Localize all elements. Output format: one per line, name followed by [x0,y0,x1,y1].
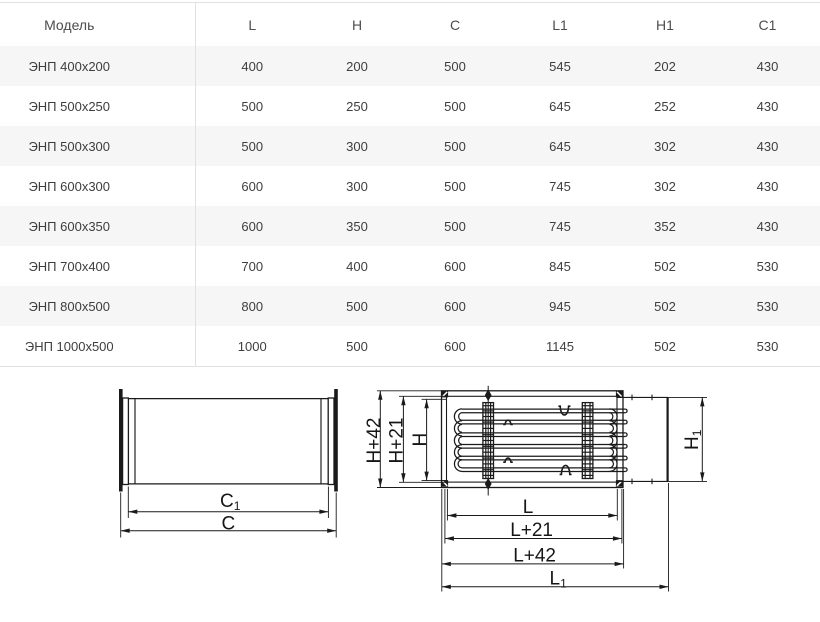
svg-text:H+21: H+21 [387,418,408,464]
svg-text:L: L [523,497,534,518]
svg-text:L1: L1 [550,568,568,590]
svg-text:H: H [410,433,431,447]
svg-text:H+42: H+42 [364,418,385,464]
svg-text:C: C [222,514,236,535]
svg-text:L+21: L+21 [510,520,553,541]
svg-text:H1: H1 [682,429,704,450]
svg-text:L+42: L+42 [513,545,556,566]
svg-text:C1: C1 [220,491,241,513]
